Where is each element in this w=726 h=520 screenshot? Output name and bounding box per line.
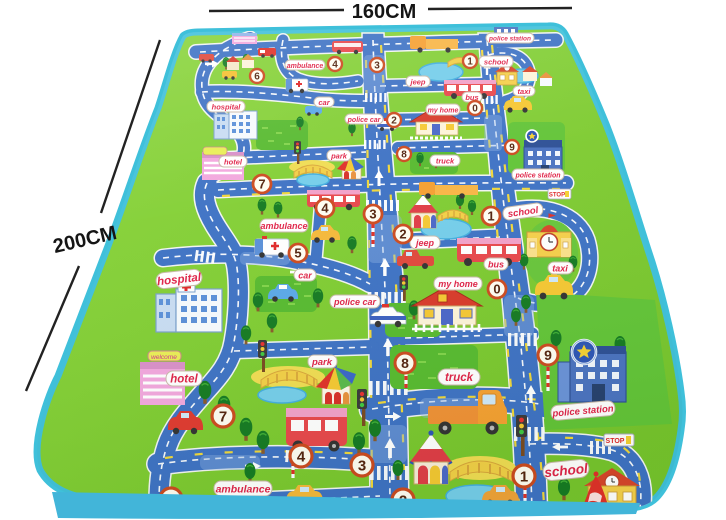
svg-text:160CM: 160CM	[352, 1, 416, 23]
